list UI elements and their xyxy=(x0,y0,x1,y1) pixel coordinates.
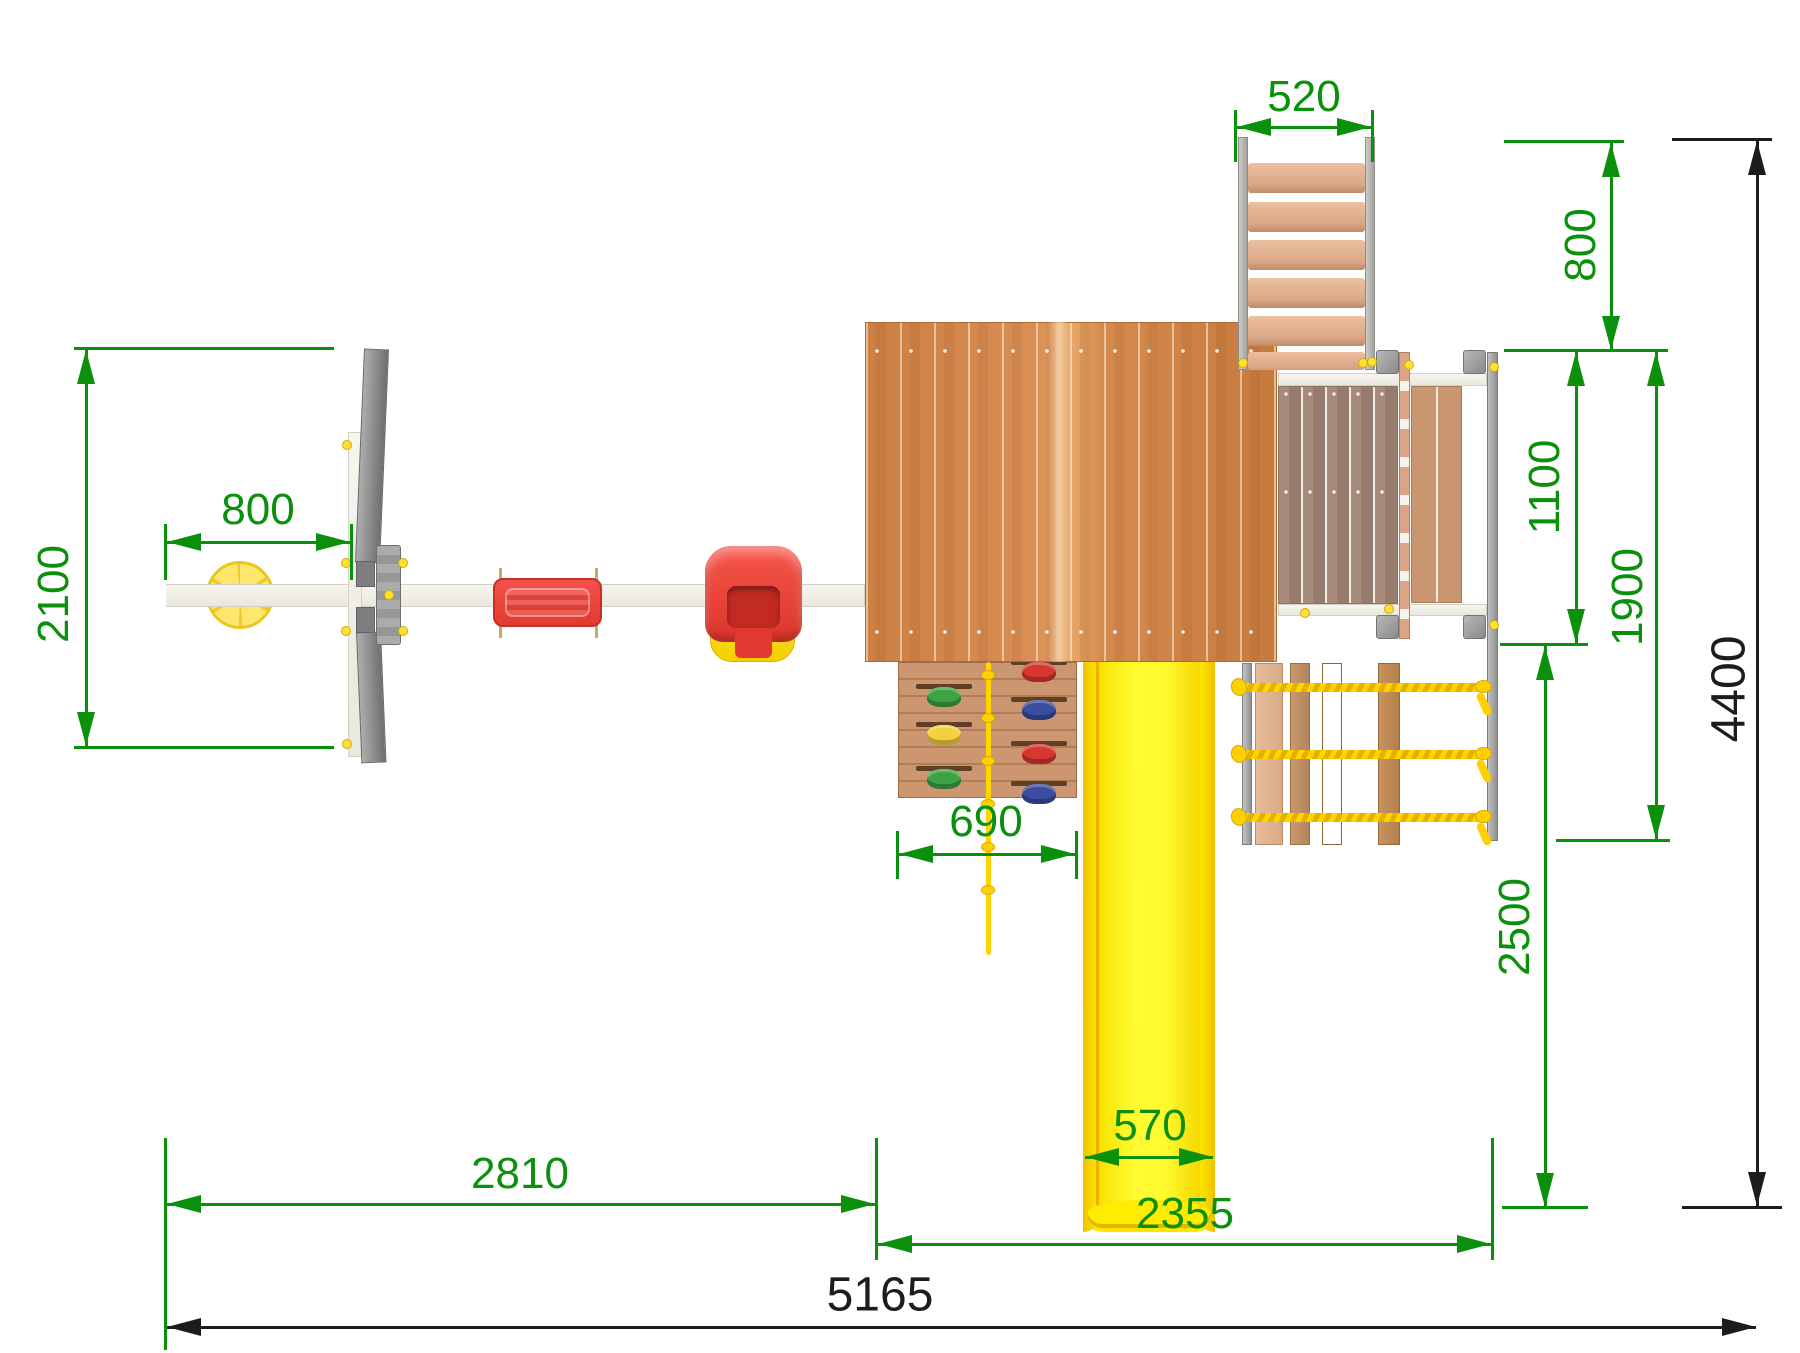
ladder-rung xyxy=(1248,352,1365,370)
climbing-hold-yellow xyxy=(927,725,961,745)
net-rope xyxy=(1244,683,1490,692)
swing-frame-leg-upper xyxy=(355,348,389,563)
bolt-cap xyxy=(1300,608,1310,618)
bolt-cap xyxy=(341,626,351,636)
climbing-hold-red xyxy=(1022,744,1056,764)
corner-post-block xyxy=(1463,615,1486,639)
ladder-rung xyxy=(1248,202,1365,232)
dim-570-label: 570 xyxy=(1113,1101,1186,1151)
baby-swing-tongue xyxy=(735,630,772,658)
dim-520-label: 520 xyxy=(1267,72,1340,122)
climbing-hold-blue xyxy=(1022,700,1056,720)
bolt-cap xyxy=(398,626,408,636)
tower-roof xyxy=(865,322,1277,662)
balcony-railing xyxy=(1399,352,1410,639)
balcony-side-deck xyxy=(1411,386,1462,603)
playground-plan-drawing: 520 2100 800 690 570 xyxy=(0,0,1800,1353)
dim-690-label: 690 xyxy=(949,797,1022,847)
extension-line xyxy=(1491,1138,1494,1260)
climbing-hold-green xyxy=(927,769,961,789)
dim-2100-label: 2100 xyxy=(29,545,79,643)
ladder-rung xyxy=(1248,163,1365,193)
swing-frame-connector-lower xyxy=(356,607,375,633)
swing-frame-connector-upper xyxy=(356,561,375,587)
dim-1900-label: 1900 xyxy=(1603,548,1653,646)
dim-4400-label: 4400 xyxy=(1702,636,1757,743)
deck-nail-row xyxy=(1284,490,1396,494)
dim-5165-label: 5165 xyxy=(827,1268,934,1323)
ladder-rung xyxy=(1248,240,1365,270)
baby-swing-seat-hole xyxy=(727,586,780,628)
roof-nail-row xyxy=(875,630,1271,634)
corner-post-block xyxy=(1463,350,1486,374)
bolt-cap xyxy=(1489,620,1499,630)
swing-frame-leg-lower xyxy=(356,631,386,763)
corner-post-block xyxy=(1376,615,1399,639)
net-rope xyxy=(1244,813,1490,822)
rope-knot xyxy=(981,756,995,766)
bolt-cap xyxy=(398,558,408,568)
rope-knot xyxy=(1475,680,1492,693)
climbing-hold-green xyxy=(927,687,961,707)
bolt-cap xyxy=(1238,358,1248,368)
rope-knot xyxy=(981,713,995,723)
side-post xyxy=(1487,352,1498,841)
roof-nail-row xyxy=(875,349,1271,353)
corner-post-block xyxy=(1376,350,1399,374)
dim-800-left-label: 800 xyxy=(221,485,294,535)
bolt-cap xyxy=(1367,357,1377,367)
bolt-cap xyxy=(1404,360,1414,370)
dim-800-right-label: 800 xyxy=(1556,208,1606,281)
ladder-rail-left xyxy=(1238,137,1248,370)
bolt-cap xyxy=(1358,358,1368,368)
roof-ridge-highlight xyxy=(1048,322,1070,662)
rope-knot xyxy=(981,670,995,680)
rope-knot xyxy=(981,885,995,895)
ladder-rung xyxy=(1248,278,1365,308)
dim-1100-label: 1100 xyxy=(1520,440,1570,535)
balcony-frame-strip-top xyxy=(1278,373,1487,386)
slide-rail-right xyxy=(1200,660,1215,1232)
rope-knot xyxy=(1475,747,1492,760)
bolt-cap xyxy=(342,739,352,749)
flat-swing-seat-inner xyxy=(505,588,590,617)
dim-2500-label: 2500 xyxy=(1490,878,1540,976)
ladder-rung xyxy=(1248,316,1365,346)
bolt-cap xyxy=(342,440,352,450)
rope-knot xyxy=(1475,810,1492,823)
deck-nail-row xyxy=(1284,392,1396,396)
slide-seam xyxy=(1096,660,1099,1212)
balcony-deck xyxy=(1278,386,1398,604)
climbing-hold-blue xyxy=(1022,784,1056,804)
dim-2810-label: 2810 xyxy=(471,1149,569,1199)
dim-2355-label: 2355 xyxy=(1136,1189,1234,1239)
bolt-cap xyxy=(384,590,394,600)
climbing-hold-red xyxy=(1022,662,1056,682)
bolt-cap xyxy=(1489,362,1499,372)
net-rope xyxy=(1244,750,1490,759)
bolt-cap xyxy=(1384,604,1394,614)
ladder-rail-right xyxy=(1365,137,1375,370)
